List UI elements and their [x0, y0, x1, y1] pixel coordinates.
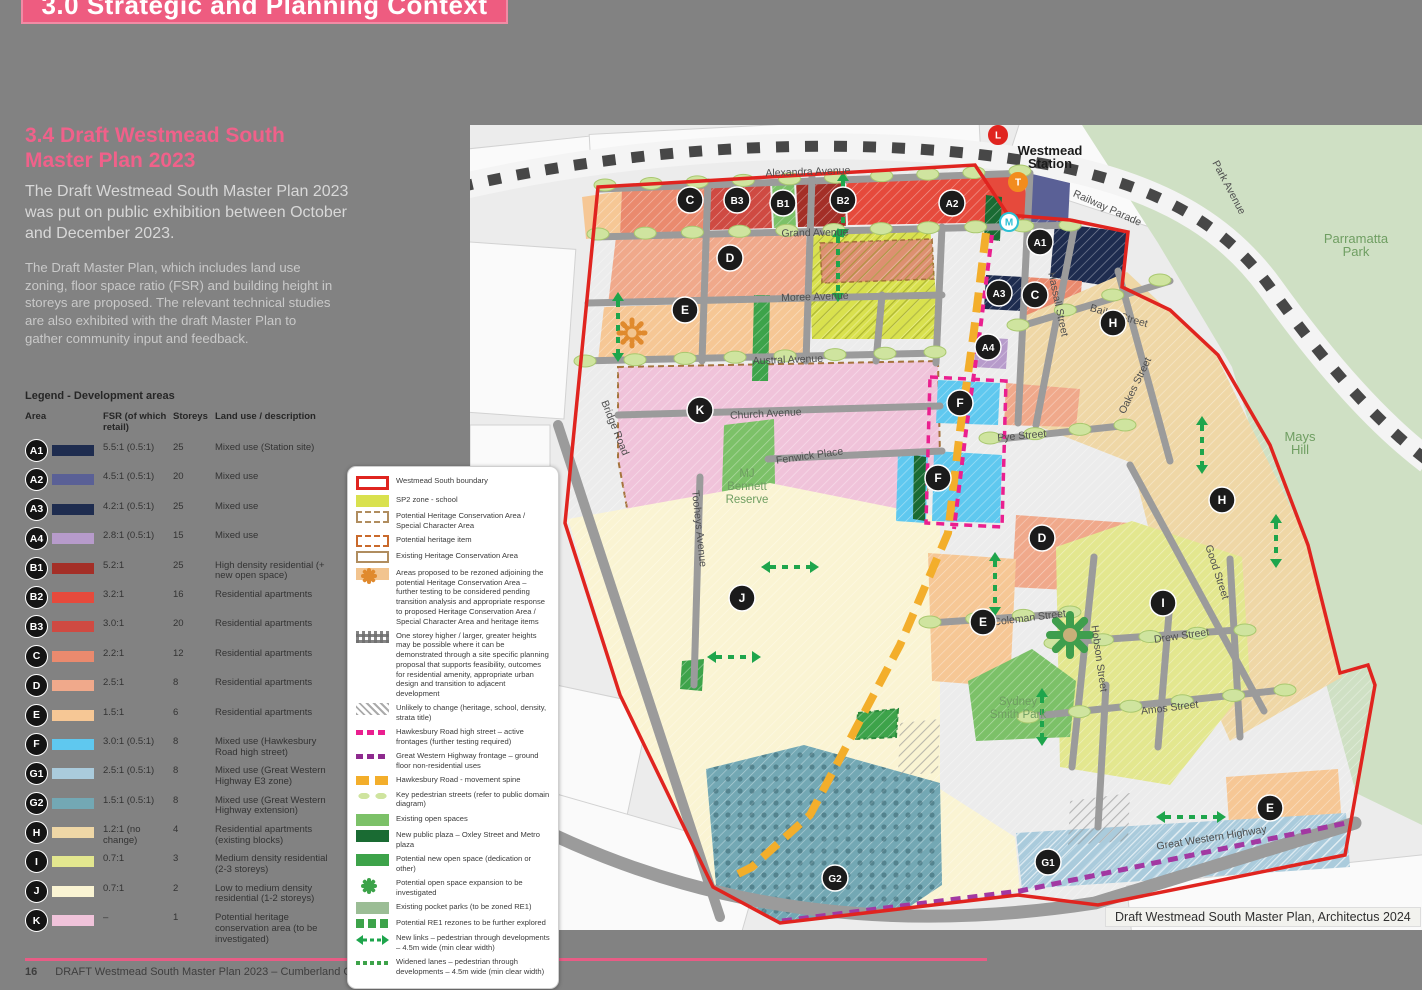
tanflower-legend-icon: [356, 568, 389, 580]
storeys-value: 20: [173, 468, 215, 483]
dev-legend-title: Legend - Development areas: [25, 390, 333, 402]
svg-text:D: D: [726, 251, 735, 265]
svg-text:A3: A3: [993, 289, 1006, 300]
sage-legend-icon: [356, 902, 389, 914]
area-badge: F: [25, 733, 48, 756]
area-badge: B2: [25, 586, 48, 609]
area-marker-H: H: [1100, 310, 1126, 336]
street-label: Austral Avenue: [752, 353, 823, 367]
area-badge: B1: [25, 557, 48, 580]
area-color-swatch: [52, 592, 94, 603]
section-heading: 3.4 Draft Westmead South Master Plan 202…: [25, 124, 335, 174]
map-legend-label: Existing pocket parks (to be zoned RE1): [396, 902, 532, 914]
svg-text:A2: A2: [946, 199, 959, 210]
map-legend-label: Westmead South boundary: [396, 476, 488, 490]
area-badge: E: [25, 704, 48, 727]
fsr-value: 5.2:1: [103, 557, 173, 572]
map-legend-label: Potential RE1 rezones to be further expl…: [396, 918, 546, 928]
area-badge: I: [25, 850, 48, 873]
svg-text:C: C: [686, 193, 695, 207]
fsr-value: 2.2:1: [103, 645, 173, 660]
area-marker-G2: G2: [822, 865, 848, 891]
area-marker-B2: B2: [830, 187, 856, 213]
area-marker-E: E: [672, 297, 698, 323]
pedestrian-oval: [1114, 419, 1136, 431]
map-legend-label: New links – pedestrian through developme…: [396, 933, 550, 952]
area-marker-C: C: [1022, 282, 1048, 308]
pedestrian-oval: [1069, 423, 1091, 435]
map-legend-item: Westmead South boundary: [356, 476, 550, 490]
land-use-value: Potential heritage conservation area (to…: [215, 909, 333, 945]
svg-text:B1: B1: [777, 199, 790, 210]
map-attribution: Draft Westmead South Master Plan, Archit…: [1105, 907, 1421, 927]
pedestrian-oval: [874, 347, 896, 359]
storeys-value: 8: [173, 792, 215, 807]
pedestrian-oval: [724, 351, 746, 363]
land-use-value: Mixed use: [215, 527, 333, 542]
street-label: Moree Avenue: [781, 290, 849, 304]
svg-text:F: F: [956, 396, 963, 410]
svg-text:G2: G2: [828, 874, 842, 885]
pedestrian-oval: [917, 222, 939, 234]
area-marker-H: H: [1209, 487, 1235, 513]
pedestrian-oval: [574, 355, 596, 367]
pedestrian-oval: [1274, 684, 1296, 696]
storeys-value: 8: [173, 762, 215, 777]
storeys-value: 1: [173, 909, 215, 924]
map-legend-item: Potential new open space (dedication or …: [356, 854, 550, 873]
transit-icon-L: L: [989, 126, 1007, 144]
map-canvas: Alexandra AvenueGrand AvenueMoree Avenue…: [470, 125, 1422, 930]
dev-legend-row: C2.2:112Residential apartments: [25, 645, 333, 674]
svg-text:A4: A4: [982, 343, 995, 354]
open-space-flower-icon: [1050, 615, 1090, 655]
flower-legend-icon: [356, 878, 389, 890]
area-marker-C: C: [677, 187, 703, 213]
storeys-value: 8: [173, 674, 215, 689]
storeys-value: 12: [173, 645, 215, 660]
area-color-swatch: [52, 445, 94, 456]
area-marker-J: J: [729, 585, 755, 611]
ovals-legend-icon: [356, 790, 389, 802]
area-color-swatch: [52, 856, 94, 867]
svg-text:I: I: [1161, 596, 1164, 610]
purple-legend-icon: [356, 754, 389, 759]
heritage-item-legend-icon: [356, 535, 389, 547]
map-legend-item: Key pedestrian streets (refer to public …: [356, 790, 550, 809]
transit-icon-T: T: [1009, 173, 1027, 191]
fsr-value: 3.0:1: [103, 615, 173, 630]
area-color-swatch: [52, 621, 94, 632]
page-footer: 16DRAFT Westmead South Master Plan 2023 …: [25, 966, 402, 978]
master-plan-map: Alexandra AvenueGrand AvenueMoree Avenue…: [470, 125, 1422, 930]
dev-legend-row: G21.5:1 (0.5:1)8Mixed use (Great Western…: [25, 792, 333, 821]
page-banner: 3.0 Strategic and Planning Context: [21, 0, 508, 24]
map-legend-box: Westmead South boundarySP2 zone - school…: [347, 466, 559, 989]
land-use-value: Residential apartments: [215, 615, 333, 630]
map-legend-item: Unlikely to change (heritage, school, de…: [356, 703, 550, 722]
area-marker-F: F: [947, 390, 973, 416]
pedestrian-oval: [824, 349, 846, 361]
area-marker-A1: A1: [1027, 229, 1053, 255]
pedestrian-oval: [624, 354, 646, 366]
map-legend-item: Existing open spaces: [356, 814, 550, 826]
pedestrian-oval: [634, 227, 656, 239]
area-badge: G2: [25, 792, 48, 815]
map-legend-label: Hawkesbury Road high street – active fro…: [396, 727, 550, 746]
fsr-value: 3.0:1 (0.5:1): [103, 733, 173, 748]
map-legend-item: Areas proposed to be rezoned adjoining t…: [356, 568, 550, 626]
widened-legend-icon: [356, 961, 389, 965]
map-legend-label: New public plaza – Oxley Street and Metr…: [396, 830, 550, 849]
svg-text:M: M: [1005, 218, 1013, 229]
area-color-swatch: [52, 474, 94, 485]
banner-title: 3.0 Strategic and Planning Context: [41, 0, 487, 21]
svg-text:H: H: [1218, 493, 1227, 507]
pedestrian-oval: [1102, 289, 1124, 301]
map-legend-label: Unlikely to change (heritage, school, de…: [396, 703, 550, 722]
re1-legend-icon: [356, 919, 389, 928]
links-legend-icon: [356, 933, 389, 945]
area-badge: A2: [25, 468, 48, 491]
area-color-swatch: [52, 710, 94, 721]
land-use-value: Residential apartments: [215, 645, 333, 660]
map-legend-label: One storey higher / larger, greater heig…: [396, 631, 550, 699]
map-legend-label: Potential open space expansion to be inv…: [396, 878, 550, 897]
map-legend-label: Hawkesbury Road - movement spine: [396, 775, 521, 785]
pedestrian-oval: [965, 221, 987, 233]
area-color-swatch: [52, 827, 94, 838]
fsr-value: 0.7:1: [103, 880, 173, 895]
fsr-value: 4.5:1 (0.5:1): [103, 468, 173, 483]
svg-text:B2: B2: [837, 196, 850, 207]
svg-text:T: T: [1015, 178, 1021, 189]
area-badge: A4: [25, 527, 48, 550]
area-color-swatch: [52, 739, 94, 750]
fsr-value: –: [103, 909, 173, 924]
pedestrian-oval: [1223, 689, 1245, 701]
dev-legend-row: A15.5:1 (0.5:1)25Mixed use (Station site…: [25, 439, 333, 468]
map-legend-item: New links – pedestrian through developme…: [356, 933, 550, 952]
svg-text:E: E: [681, 303, 689, 317]
pedestrian-oval: [870, 223, 892, 235]
land-use-value: Mixed use (Great Western Highway E3 zone…: [215, 762, 333, 787]
hca-legend-icon: [356, 511, 389, 523]
storeys-value: 15: [173, 527, 215, 542]
storeys-value: 16: [173, 586, 215, 601]
map-legend-item: Hawkesbury Road high street – active fro…: [356, 727, 550, 746]
fsr-value: 2.8:1 (0.5:1): [103, 527, 173, 542]
area-color-swatch: [52, 651, 94, 662]
dev-legend-row: J0.7:12Low to medium density residential…: [25, 880, 333, 909]
page-number: 16: [25, 966, 37, 978]
transit-icon-M: M: [1000, 213, 1018, 231]
map-legend-label: Existing Heritage Conservation Area: [396, 551, 518, 563]
dev-legend-row: A34.2:1 (0.5:1)25Mixed use: [25, 498, 333, 527]
area-color-swatch: [52, 768, 94, 779]
storeys-value: 20: [173, 615, 215, 630]
storeys-value: 8: [173, 733, 215, 748]
storeys-value: 4: [173, 821, 215, 836]
area-badge: K: [25, 909, 48, 932]
area-color-swatch: [52, 798, 94, 809]
fsr-value: 1.5:1 (0.5:1): [103, 792, 173, 807]
area-badge: J: [25, 880, 48, 903]
col-area: Area: [25, 411, 103, 433]
development-legend-table: Legend - Development areas Area FSR (of …: [25, 390, 333, 945]
storeys-value: 25: [173, 439, 215, 454]
dev-legend-row: A42.8:1 (0.5:1)15Mixed use: [25, 527, 333, 556]
land-use-value: Mixed use (Station site): [215, 439, 333, 454]
pedestrian-oval: [729, 225, 751, 237]
storeys-value: 6: [173, 704, 215, 719]
land-use-value: High density residential (+ new open spa…: [215, 557, 333, 582]
pedestrian-oval: [681, 226, 703, 238]
dev-legend-row: E1.5:16Residential apartments: [25, 704, 333, 733]
area-marker-D: D: [1029, 525, 1055, 551]
dev-legend-row: A24.5:1 (0.5:1)20Mixed use: [25, 468, 333, 497]
grayhatch-legend-icon: [356, 703, 389, 715]
svg-text:C: C: [1031, 288, 1040, 302]
area-marker-F: F: [925, 465, 951, 491]
dev-legend-row: I0.7:13Medium density residential (2-3 s…: [25, 850, 333, 879]
area-badge: D: [25, 674, 48, 697]
map-legend-item: New public plaza – Oxley Street and Metr…: [356, 830, 550, 849]
svg-text:A1: A1: [1034, 238, 1047, 249]
area-color-swatch: [52, 886, 94, 897]
area-color-swatch: [52, 915, 94, 926]
storeys-value: 25: [173, 498, 215, 513]
map-legend-label: Potential Heritage Conservation Area / S…: [396, 511, 550, 530]
area-marker-A2: A2: [939, 190, 965, 216]
gold-legend-icon: [356, 776, 389, 785]
area-marker-E: E: [970, 609, 996, 635]
ehca-legend-icon: [356, 551, 389, 563]
street-label: Grand Avenue: [781, 226, 848, 239]
map-legend-item: Existing Heritage Conservation Area: [356, 551, 550, 563]
plaza-legend-icon: [356, 830, 389, 842]
land-use-value: Low to medium density residential (1-2 s…: [215, 880, 333, 905]
map-legend-label: Key pedestrian streets (refer to public …: [396, 790, 550, 809]
svg-text:E: E: [979, 615, 987, 629]
area-badge: C: [25, 645, 48, 668]
dev-legend-row: D2.5:18Residential apartments: [25, 674, 333, 703]
pedestrian-oval: [674, 352, 696, 364]
svg-text:E: E: [1266, 801, 1274, 815]
col-fsr: FSR (of which retail): [103, 411, 173, 433]
fsr-value: 2.5:1: [103, 674, 173, 689]
col-storeys: Storeys: [173, 411, 215, 433]
storeys-value: 3: [173, 850, 215, 865]
storeys-value: 2: [173, 880, 215, 895]
map-legend-label: Widened lanes – pedestrian through devel…: [396, 957, 550, 976]
area-marker-B1: B1: [770, 190, 796, 216]
area-badge: G1: [25, 762, 48, 785]
pedestrian-oval: [1149, 274, 1171, 286]
dev-legend-row: G12.5:1 (0.5:1)8Mixed use (Great Western…: [25, 762, 333, 791]
detail-paragraph: The Draft Master Plan, which includes la…: [25, 259, 333, 347]
land-use-value: Residential apartments: [215, 674, 333, 689]
area-marker-A3: A3: [986, 280, 1012, 306]
area-marker-D: D: [717, 245, 743, 271]
pedestrian-oval: [1120, 700, 1142, 712]
map-legend-item: SP2 zone - school: [356, 495, 550, 507]
fsr-value: 2.5:1 (0.5:1): [103, 762, 173, 777]
magenta-legend-icon: [356, 730, 389, 735]
svg-text:B3: B3: [731, 196, 744, 207]
area-color-swatch: [52, 533, 94, 544]
map-legend-label: Great Western Highway frontage – ground …: [396, 751, 550, 770]
dev-legend-row: B23.2:116Residential apartments: [25, 586, 333, 615]
map-legend-label: Potential heritage item: [396, 535, 472, 547]
open-space-flower-icon: [619, 320, 645, 346]
svg-text:J: J: [739, 591, 746, 605]
pedestrian-oval: [1234, 624, 1256, 636]
area-marker-A4: A4: [975, 334, 1001, 360]
dev-legend-rows: A15.5:1 (0.5:1)25Mixed use (Station site…: [25, 439, 333, 945]
land-use-value: Residential apartments (existing blocks): [215, 821, 333, 846]
dev-legend-row: B15.2:125High density residential (+ new…: [25, 557, 333, 586]
dev-legend-row: H1.2:1 (no change)4Residential apartment…: [25, 821, 333, 850]
land-use-value: Mixed use: [215, 498, 333, 513]
area-color-swatch: [52, 504, 94, 515]
col-land-use: Land use / description: [215, 411, 333, 433]
land-use-value: Medium density residential (2-3 storeys): [215, 850, 333, 875]
land-use-value: Mixed use: [215, 468, 333, 483]
area-color-swatch: [52, 563, 94, 574]
area-marker-I: I: [1150, 590, 1176, 616]
map-legend-item: One storey higher / larger, greater heig…: [356, 631, 550, 699]
map-legend-item: Potential open space expansion to be inv…: [356, 878, 550, 897]
map-legend-item: Potential RE1 rezones to be further expl…: [356, 918, 550, 928]
map-legend-label: Existing open spaces: [396, 814, 468, 826]
svg-text:H: H: [1109, 316, 1118, 330]
area-badge: A1: [25, 439, 48, 462]
map-legend-items: Westmead South boundarySP2 zone - school…: [356, 476, 550, 976]
pedestrian-oval: [1007, 319, 1029, 331]
area-badge: A3: [25, 498, 48, 521]
dev-legend-header: Area FSR (of which retail) Storeys Land …: [25, 411, 333, 433]
map-legend-label: Potential new open space (dedication or …: [396, 854, 550, 873]
boundary-legend-icon: [356, 476, 389, 490]
area-marker-G1: G1: [1035, 849, 1061, 875]
svg-text:D: D: [1038, 531, 1047, 545]
map-legend-label: SP2 zone - school: [396, 495, 458, 507]
fsr-value: 1.5:1: [103, 704, 173, 719]
svg-text:F: F: [934, 471, 941, 485]
land-use-value: Residential apartments: [215, 704, 333, 719]
fsr-value: 1.2:1 (no change): [103, 821, 173, 846]
intro-paragraph: The Draft Westmead South Master Plan 202…: [25, 181, 355, 244]
map-legend-item: Hawkesbury Road - movement spine: [356, 775, 550, 785]
fsr-value: 5.5:1 (0.5:1): [103, 439, 173, 454]
dev-legend-row: K–1Potential heritage conservation area …: [25, 909, 333, 945]
open-legend-icon: [356, 814, 389, 826]
pedestrian-oval: [924, 346, 946, 358]
storeys-value: 25: [173, 557, 215, 572]
land-use-value: Mixed use (Great Western Highway extensi…: [215, 792, 333, 817]
area-marker-K: K: [687, 397, 713, 423]
area-marker-E: E: [1257, 795, 1283, 821]
area-badge: H: [25, 821, 48, 844]
map-legend-item: Great Western Highway frontage – ground …: [356, 751, 550, 770]
svg-text:G1: G1: [1041, 858, 1055, 869]
school-legend-icon: [356, 495, 389, 507]
map-legend-item: Potential heritage item: [356, 535, 550, 547]
area-badge: B3: [25, 615, 48, 638]
area-color-swatch: [52, 680, 94, 691]
dev-legend-row: B33.0:120Residential apartments: [25, 615, 333, 644]
map-legend-item: Potential Heritage Conservation Area / S…: [356, 511, 550, 530]
dev-legend-row: F3.0:1 (0.5:1)8Mixed use (Hawkesbury Roa…: [25, 733, 333, 762]
pedestrian-oval: [1068, 706, 1090, 718]
map-legend-item: Existing pocket parks (to be zoned RE1): [356, 902, 550, 914]
pedestrian-oval: [587, 228, 609, 240]
fsr-value: 0.7:1: [103, 850, 173, 865]
land-use-value: Residential apartments: [215, 586, 333, 601]
check-legend-icon: [356, 631, 389, 643]
pedestrian-oval: [919, 616, 941, 628]
fsr-value: 3.2:1: [103, 586, 173, 601]
land-use-value: Mixed use (Hawkesbury Road high street): [215, 733, 333, 758]
newopen-legend-icon: [356, 854, 389, 866]
map-legend-item: Widened lanes – pedestrian through devel…: [356, 957, 550, 976]
map-legend-label: Areas proposed to be rezoned adjoining t…: [396, 568, 550, 626]
fsr-value: 4.2:1 (0.5:1): [103, 498, 173, 513]
svg-text:L: L: [995, 131, 1001, 142]
svg-text:K: K: [696, 403, 705, 417]
area-marker-B3: B3: [724, 187, 750, 213]
